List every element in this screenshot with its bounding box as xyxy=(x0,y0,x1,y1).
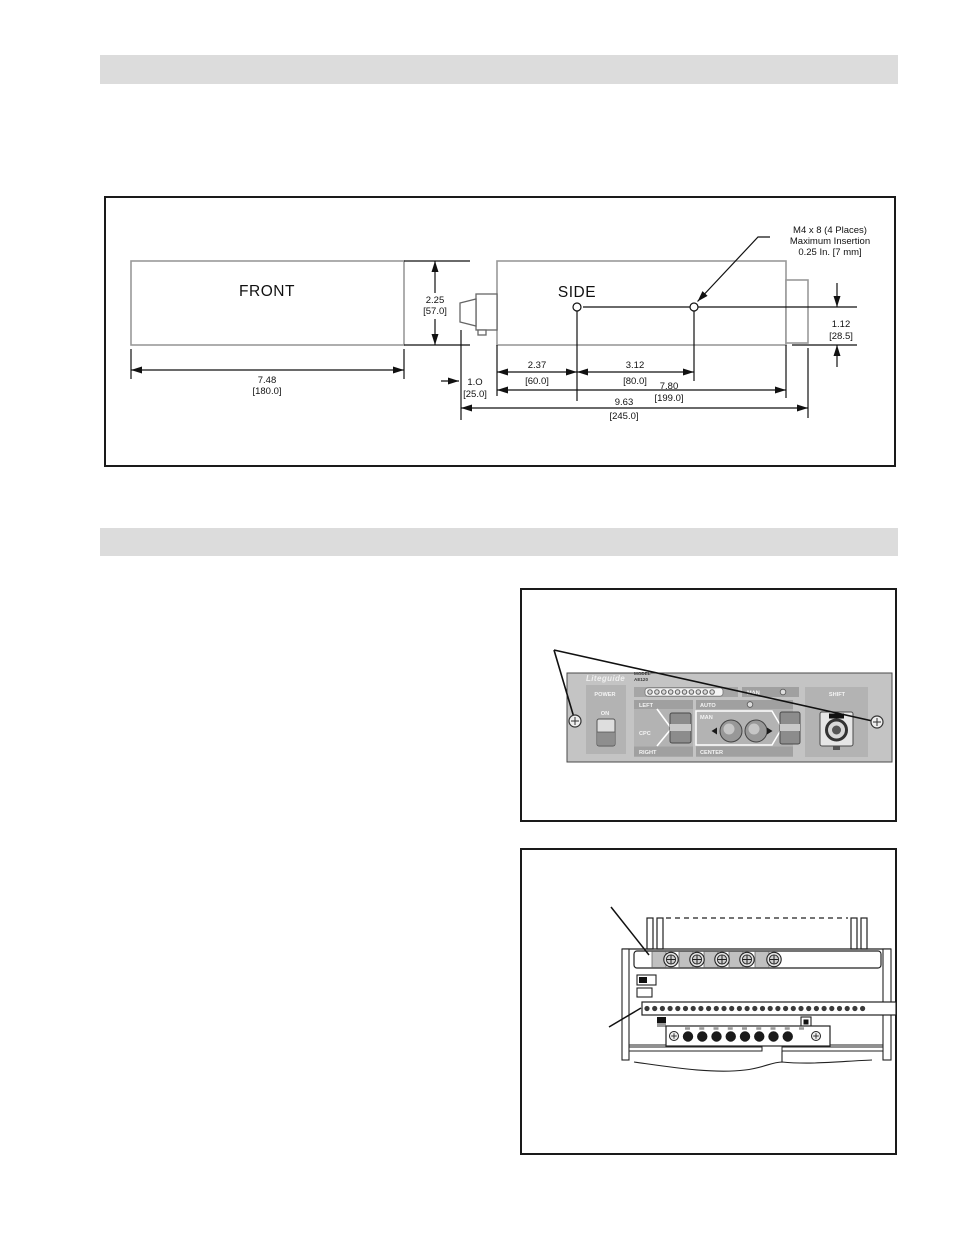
front-view-label: FRONT xyxy=(239,283,295,300)
jumper-tab xyxy=(657,1017,666,1027)
adjust-button-left xyxy=(720,720,742,742)
terminal-screw-icon xyxy=(740,952,754,966)
terminal-screw-icon xyxy=(715,952,729,966)
terminal-view-figure xyxy=(520,848,897,1155)
callout-line-1: M4 x 8 (4 Places) xyxy=(793,225,867,236)
center-label: CENTER xyxy=(700,750,723,756)
bottom-rail-right xyxy=(782,1047,883,1051)
left-screw-icon xyxy=(569,715,581,727)
right-label: RIGHT xyxy=(639,750,657,756)
dim-hole-offset-in: 2.37 xyxy=(528,360,547,371)
terminal-screw-icon xyxy=(690,952,704,966)
dim-hole-spacing-in: 3.12 xyxy=(626,360,645,371)
dim-hole-offset-mm: [60.0] xyxy=(525,376,549,387)
dim-hole-spacing-mm: [80.0] xyxy=(623,376,647,387)
power-section: POWER ON xyxy=(586,685,626,754)
cpc-section: LEFT CPC RIGHT xyxy=(634,700,693,757)
model-number: AE120 xyxy=(634,677,648,682)
callout-line-3: 0.25 In. [7 mm] xyxy=(798,247,861,258)
pin-connector-strip xyxy=(642,1002,896,1015)
terminal-screw-icon xyxy=(767,952,781,966)
power-label: POWER xyxy=(594,692,615,698)
on-label: ON xyxy=(601,711,609,717)
manual-page: FRONT SIDE 7.48 [180.0] 2.25 [57.0] 2.37… xyxy=(0,0,954,1235)
left-label: LEFT xyxy=(639,703,654,709)
dim-overall-in: 9.63 xyxy=(615,397,634,408)
man-indicator-led xyxy=(780,689,786,695)
row-screw-icon xyxy=(812,1032,821,1041)
led-bar-display xyxy=(634,687,738,697)
dim-end-height-mm: [28.5] xyxy=(829,331,853,342)
bottom-rail-left xyxy=(629,1047,762,1051)
dim-height-mm: [57.0] xyxy=(423,306,447,317)
man-label: MAN xyxy=(700,715,713,721)
adjust-button-right xyxy=(745,720,767,742)
auto-man-section: AUTO MAN CENTER xyxy=(696,700,800,757)
section-header-bar-1 xyxy=(100,55,898,84)
dim-end-height-in: 1.12 xyxy=(832,319,851,330)
left-flange xyxy=(622,949,629,1060)
small-window xyxy=(637,988,652,997)
dim-body-length-mm: [199.0] xyxy=(654,393,683,404)
front-view-outline xyxy=(131,261,404,345)
side-view-outline xyxy=(497,261,808,345)
brand-logo: Liteguide xyxy=(586,674,625,683)
row-screw-icon xyxy=(670,1032,679,1041)
dim-height-in: 2.25 xyxy=(426,295,445,306)
side-view-label: SIDE xyxy=(558,284,596,301)
auto-label: AUTO xyxy=(700,703,716,709)
section-header-bar-2 xyxy=(100,528,898,556)
round-connector-row xyxy=(666,1026,830,1046)
dim-lens-offset-in: 1.O xyxy=(467,377,482,388)
shift-section: SHIFT xyxy=(805,687,868,757)
dim-front-width-mm: [180.0] xyxy=(252,386,281,397)
cpc-thumbwheel xyxy=(670,713,691,743)
terminal-screw-icon xyxy=(664,952,678,966)
terminal-screw-strip xyxy=(634,951,881,968)
dim-body-length-in: 7.80 xyxy=(660,381,679,392)
shift-thumbwheel xyxy=(780,712,800,744)
auto-led xyxy=(747,702,753,708)
side-view-end-cap xyxy=(786,280,808,343)
cpc-label: CPC xyxy=(639,731,651,737)
man-indicator-section: MAN xyxy=(742,687,799,697)
shift-label: SHIFT xyxy=(829,692,846,698)
dim-lens-offset-mm: [25.0] xyxy=(463,389,487,400)
dip-indicator xyxy=(637,975,656,985)
dimensions-figure: FRONT SIDE 7.48 [180.0] 2.25 [57.0] 2.37… xyxy=(104,196,896,467)
power-toggle xyxy=(597,719,615,746)
dim-front-width-in: 7.48 xyxy=(258,375,277,386)
dim-overall-mm: [245.0] xyxy=(609,411,638,422)
callout-line-2: Maximum Insertion xyxy=(790,236,870,247)
right-screw-icon xyxy=(871,716,883,728)
front-panel-figure: Liteguide MODEL AE120 POWER ON MAN xyxy=(520,588,897,822)
shift-connector xyxy=(820,712,853,750)
